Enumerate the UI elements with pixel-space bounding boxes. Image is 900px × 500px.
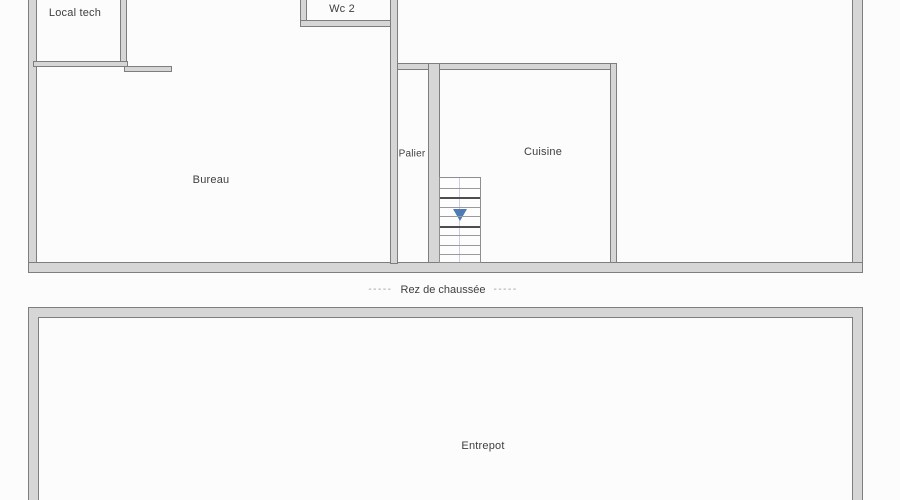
floor-plan-warehouse: Entrepot: [0, 0, 900, 500]
floor-plan-page: Local tech Wc 2 Bureau Palier Cuisine --…: [0, 0, 900, 500]
room-label-entrepot: Entrepot: [461, 440, 504, 452]
warehouse-floor-area: [38, 317, 853, 500]
